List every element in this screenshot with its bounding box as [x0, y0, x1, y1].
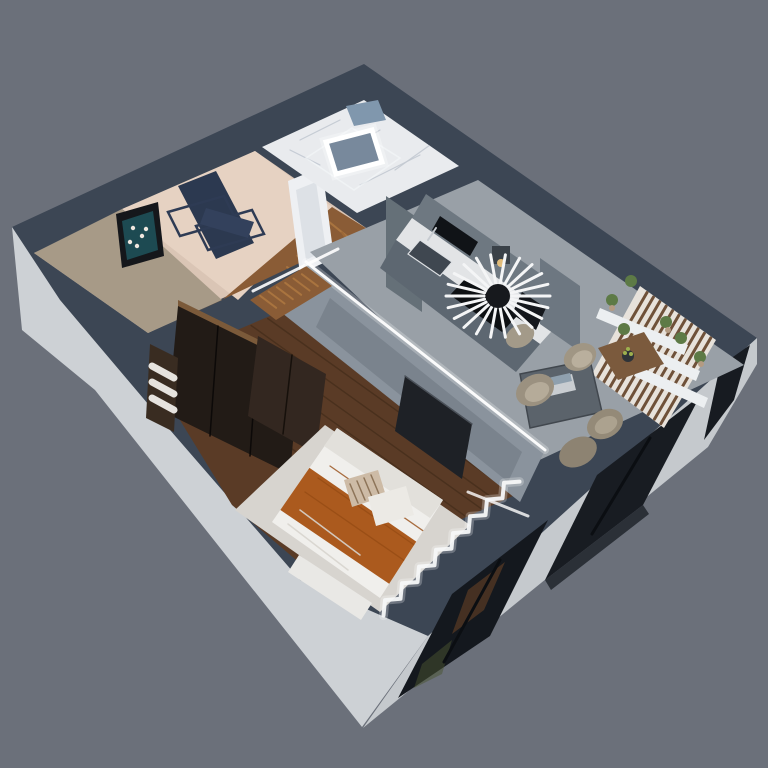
scene-canvas: [0, 0, 768, 768]
scene-layers: [12, 64, 757, 728]
apartment-3d-floorplan: [0, 0, 768, 768]
living-chandelier-hub: [486, 284, 510, 308]
